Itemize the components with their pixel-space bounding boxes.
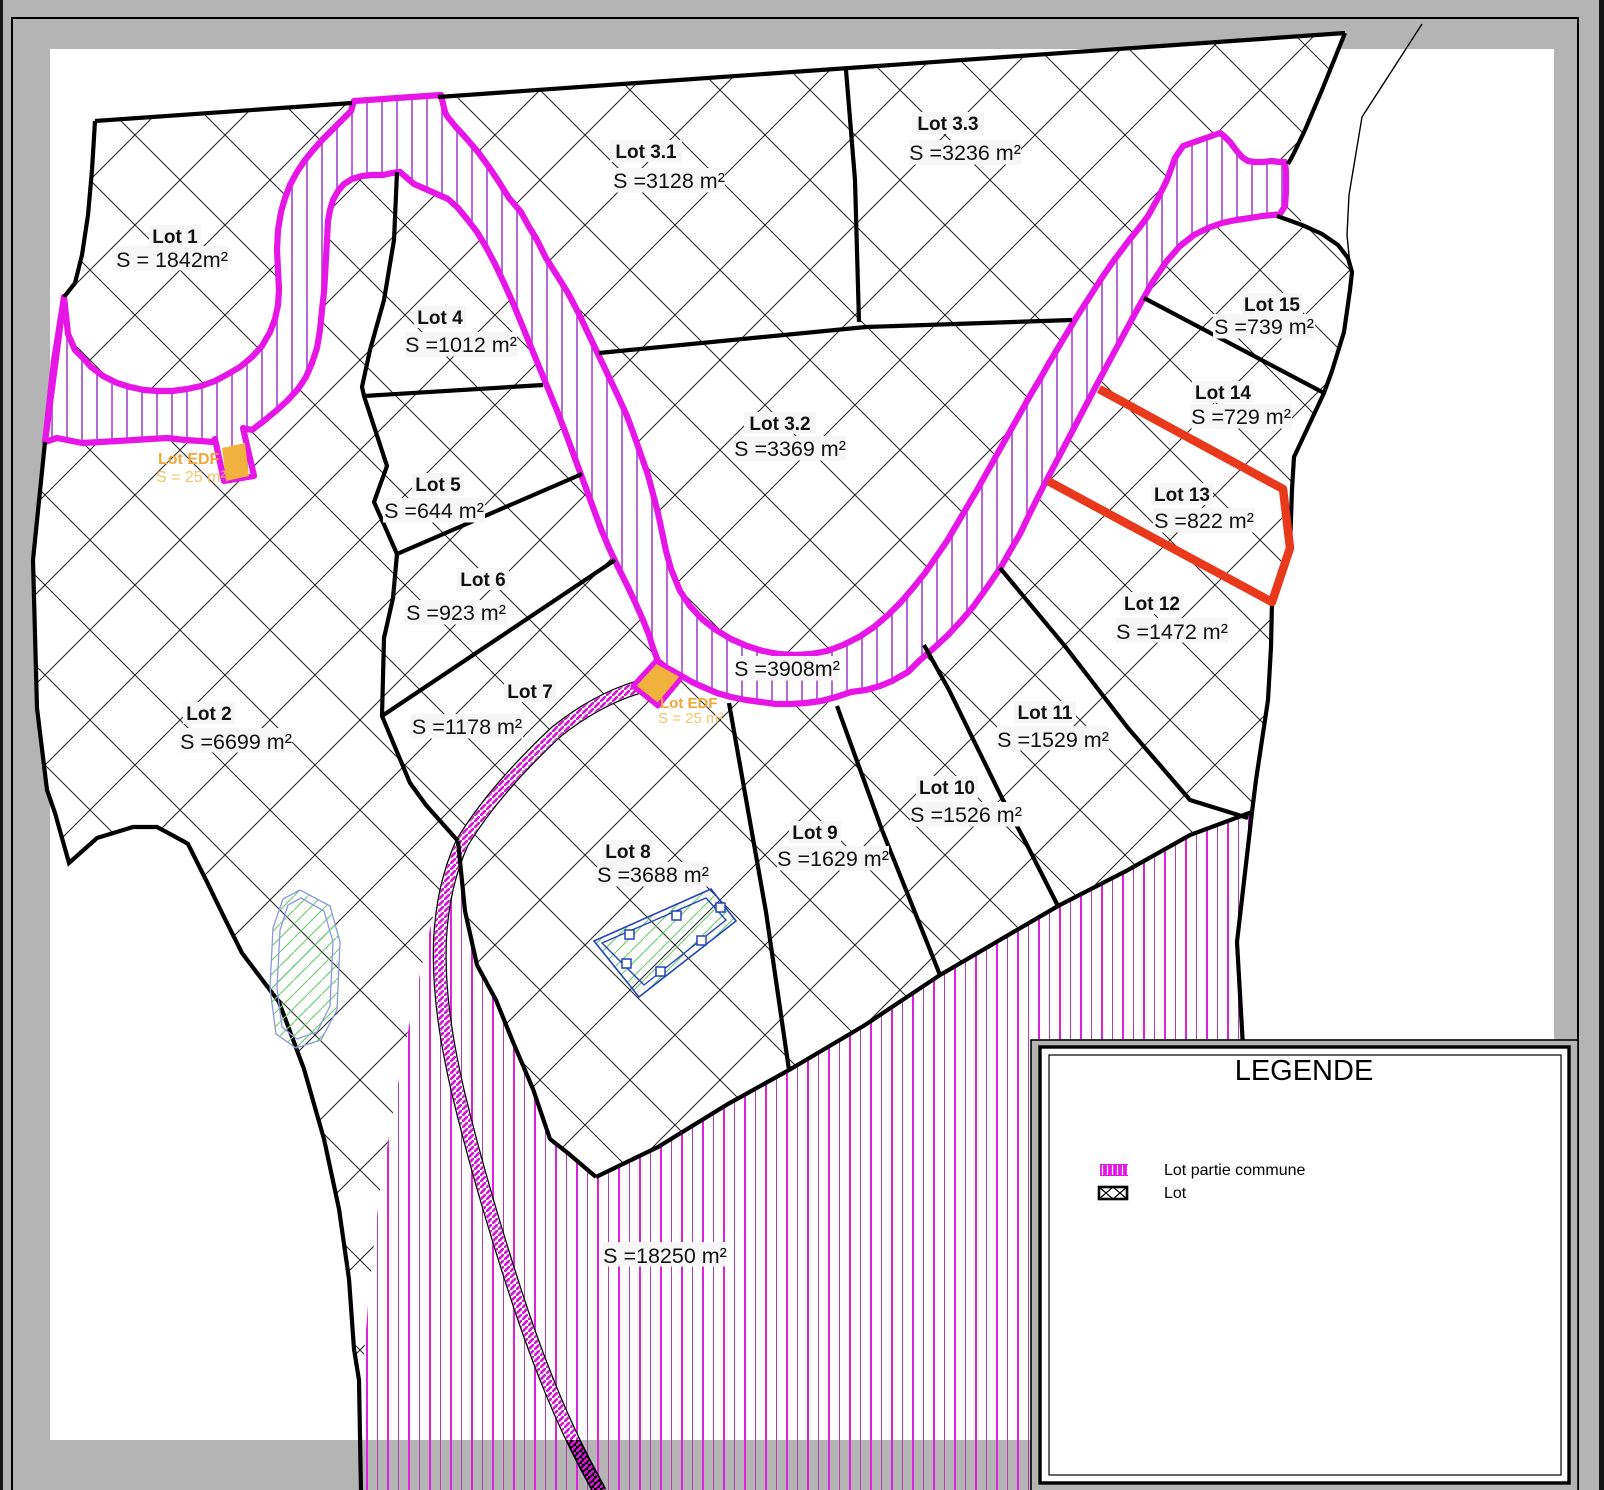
- svg-text:S =1012 m²: S =1012 m²: [405, 333, 517, 357]
- svg-text:Lot partie commune: Lot partie commune: [1164, 1162, 1306, 1179]
- svg-text:LEGENDE: LEGENDE: [1235, 1055, 1374, 1087]
- svg-text:S =3688 m²: S =3688 m²: [597, 863, 709, 887]
- svg-text:S =18250 m²: S =18250 m²: [603, 1244, 727, 1268]
- svg-text:S =1629 m²: S =1629 m²: [777, 847, 889, 871]
- svg-text:S =3369 m²: S =3369 m²: [734, 437, 846, 461]
- svg-text:S =3128 m²: S =3128 m²: [613, 169, 725, 193]
- svg-text:S =739 m²: S =739 m²: [1214, 315, 1314, 339]
- svg-text:S =1472 m²: S =1472 m²: [1116, 620, 1228, 644]
- svg-text:Lot 10: Lot 10: [919, 778, 975, 799]
- svg-text:S =822 m²: S =822 m²: [1154, 509, 1254, 533]
- svg-text:Lot 3.3: Lot 3.3: [917, 114, 978, 135]
- svg-text:S =1529 m²: S =1529 m²: [997, 728, 1109, 752]
- svg-text:Lot 15: Lot 15: [1244, 295, 1300, 316]
- svg-text:Lot 3.1: Lot 3.1: [615, 142, 677, 163]
- svg-text:S =644 m²: S =644 m²: [384, 499, 484, 523]
- svg-text:Lot 5: Lot 5: [415, 475, 461, 496]
- svg-text:Lot 4: Lot 4: [417, 308, 463, 329]
- svg-text:Lot EDF: Lot EDF: [158, 451, 220, 468]
- svg-text:Lot 13: Lot 13: [1154, 485, 1210, 506]
- svg-text:Lot 9: Lot 9: [792, 823, 837, 844]
- svg-text:S =1178 m²: S =1178 m²: [412, 715, 522, 739]
- svg-text:S = 25 m²: S = 25 m²: [658, 710, 723, 727]
- svg-text:S =3908m²: S =3908m²: [734, 657, 840, 681]
- svg-text:S = 25 m²: S = 25 m²: [156, 469, 226, 486]
- svg-text:Lot 11: Lot 11: [1018, 703, 1073, 724]
- svg-text:S =923 m²: S =923 m²: [406, 601, 506, 625]
- svg-text:S =1526 m²: S =1526 m²: [910, 803, 1022, 827]
- svg-text:Lot 8: Lot 8: [605, 842, 650, 863]
- svg-text:Lot 14: Lot 14: [1195, 383, 1251, 404]
- svg-text:S =3236 m²: S =3236 m²: [909, 141, 1021, 165]
- svg-text:Lot 2: Lot 2: [186, 704, 231, 725]
- svg-text:Lot: Lot: [1164, 1185, 1187, 1202]
- svg-text:Lot 6: Lot 6: [460, 570, 505, 591]
- svg-text:Lot 12: Lot 12: [1124, 594, 1180, 615]
- svg-text:Lot 7: Lot 7: [507, 682, 552, 703]
- svg-text:Lot 1: Lot 1: [152, 227, 198, 248]
- svg-text:Lot 3.2: Lot 3.2: [749, 414, 810, 435]
- svg-text:S =6699 m²: S =6699 m²: [180, 730, 292, 754]
- svg-text:S =729 m²: S =729 m²: [1191, 405, 1291, 429]
- svg-text:S = 1842m²: S = 1842m²: [116, 248, 228, 272]
